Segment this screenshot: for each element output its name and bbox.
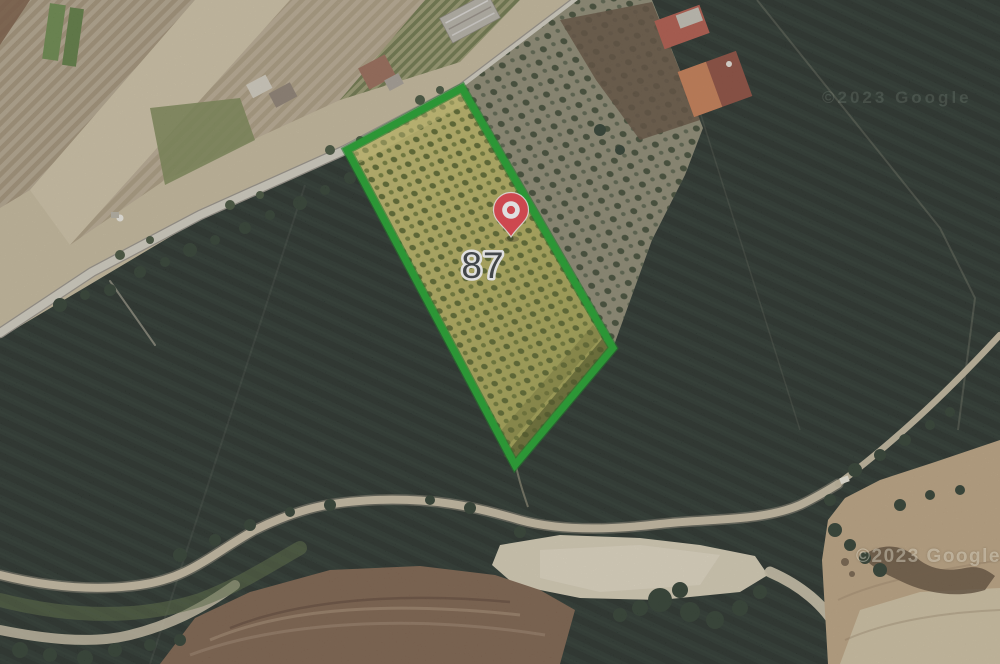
grain-light: [0, 0, 1000, 664]
satellite-map[interactable]: 87 ©2023 Google ©2023 Google: [0, 0, 1000, 664]
satellite-imagery: 87: [0, 0, 1000, 664]
